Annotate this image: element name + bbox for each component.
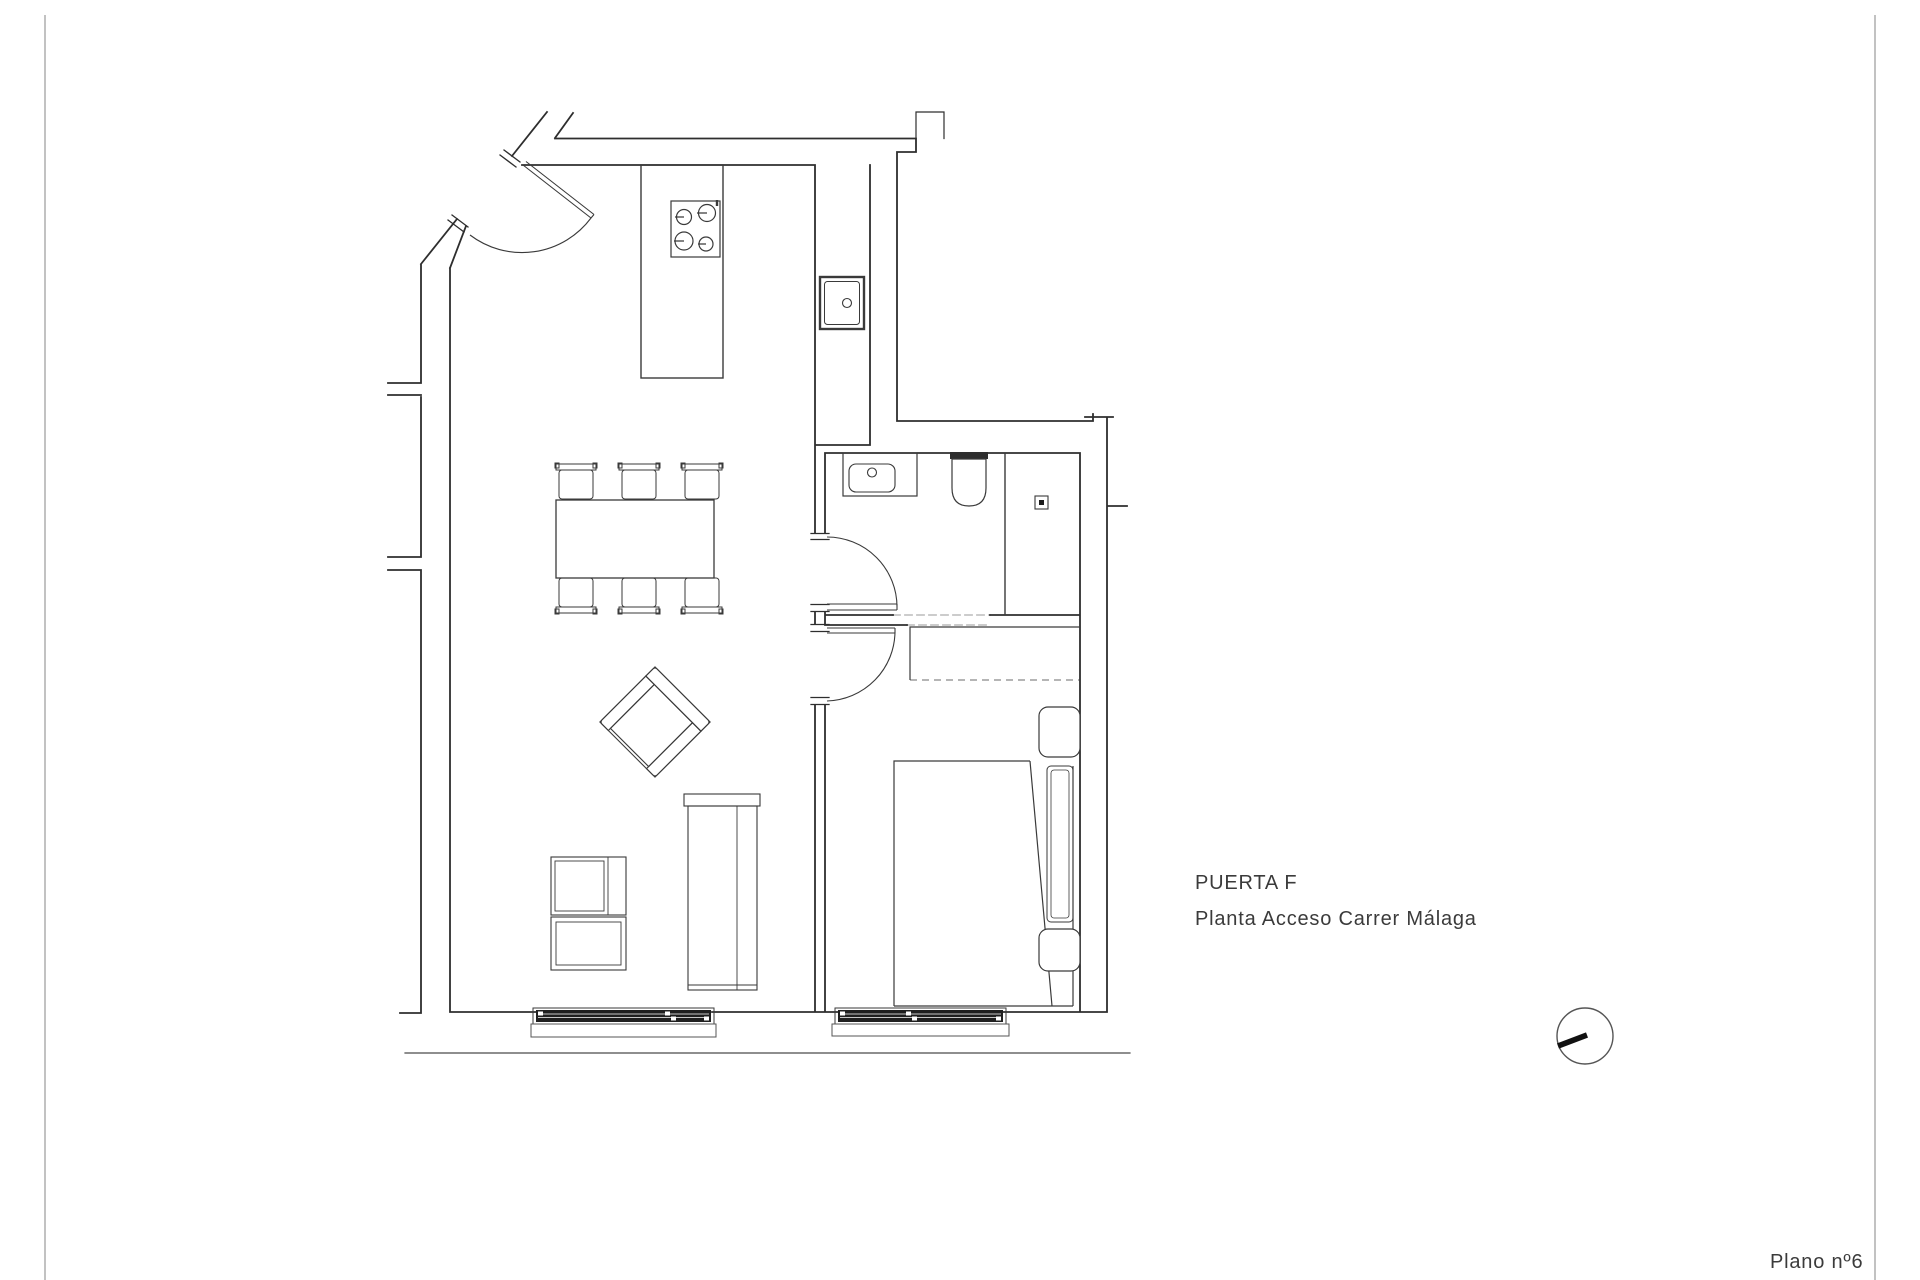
floor-label: Planta Acceso Carrer Málaga	[1195, 908, 1477, 931]
kitchen-island	[641, 165, 723, 378]
bed-duvet-strip-inner	[1051, 770, 1069, 918]
nightstand-upper	[1039, 707, 1080, 757]
chair-back	[556, 464, 596, 470]
chair-seat	[685, 578, 719, 607]
chair-back	[619, 464, 659, 470]
armchair	[600, 667, 710, 777]
chair-back	[682, 464, 722, 470]
window-sill	[832, 1024, 1009, 1036]
chair-seat	[622, 578, 656, 607]
chair-back	[556, 607, 596, 613]
armchair-arm	[600, 676, 654, 730]
bathroom-faucet-icon	[868, 468, 877, 477]
armchair-seat	[610, 685, 692, 767]
north-needle	[1558, 1035, 1587, 1046]
window-sash-bar	[838, 1010, 1003, 1022]
kitchen	[641, 165, 864, 378]
dining-chairs-bottom	[555, 578, 723, 614]
cooktop-burners	[674, 200, 717, 251]
shower-drain-dot	[1039, 500, 1044, 505]
tv-unit-body	[688, 806, 757, 990]
dining-table	[556, 500, 714, 578]
sideboard-bottom-inner	[556, 922, 621, 965]
faded-wall-lines	[893, 615, 990, 625]
toilet-tank	[950, 452, 988, 459]
door-jamb-ticks	[448, 150, 829, 705]
bathroom	[843, 452, 1048, 615]
dining-chairs-top	[555, 463, 723, 499]
bathroom-door	[827, 537, 897, 610]
window-sash-bar	[536, 1010, 711, 1022]
floor-plan-drawing	[0, 0, 1920, 1280]
entry-door	[470, 162, 594, 253]
north-arrow-icon	[1557, 1008, 1613, 1064]
chair-back	[682, 607, 722, 613]
walls	[388, 112, 1130, 1053]
bathroom-vanity	[843, 453, 917, 496]
sideboard-top-inner	[555, 861, 604, 911]
sheet-borders	[45, 15, 1875, 1280]
toilet-bowl	[952, 459, 986, 506]
chair-seat	[622, 470, 656, 499]
burner-knob-ticks	[674, 213, 707, 244]
sideboard-bottom-box	[551, 917, 626, 970]
window-sill	[531, 1024, 716, 1037]
armchair-arm	[647, 723, 701, 777]
bedroom-door	[827, 628, 895, 701]
sideboard	[551, 857, 626, 970]
living-window	[531, 1008, 716, 1037]
living-room	[551, 463, 760, 990]
kitchen-sink-drain-icon	[843, 299, 852, 308]
unit-label: PUERTA F	[1195, 872, 1297, 895]
sideboard-top-box	[551, 857, 626, 915]
sheet-number-label: Plano nº6	[1770, 1251, 1863, 1274]
roof-notch-lines	[916, 112, 944, 139]
tv-unit-top	[684, 794, 760, 806]
nightstand-lower	[1039, 929, 1080, 971]
chair-back	[619, 607, 659, 613]
bedroom	[894, 627, 1080, 1006]
chair-seat	[559, 578, 593, 607]
armchair-back	[646, 667, 710, 731]
tv-unit	[684, 794, 760, 990]
doors	[470, 162, 897, 702]
wardrobe	[910, 627, 1080, 680]
bedroom-window	[832, 1008, 1009, 1036]
plan-sheet: PUERTA F Planta Acceso Carrer Málaga Pla…	[0, 0, 1920, 1280]
chair-seat	[559, 470, 593, 499]
chair-seat	[685, 470, 719, 499]
